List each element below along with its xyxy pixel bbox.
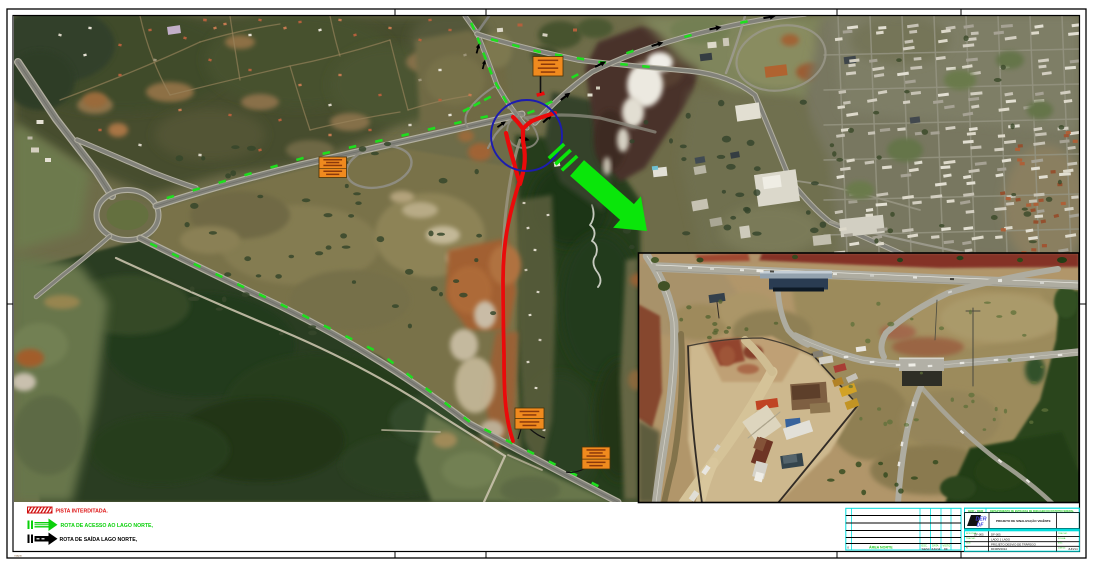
svg-text:DF005/2014: DF005/2014 [991, 547, 1007, 551]
svg-text:FOLHA: FOLHA [1058, 537, 1066, 540]
svg-text:TRECHO: TRECHO [1058, 533, 1068, 535]
svg-text:S/ESC: S/ESC [922, 547, 930, 551]
svg-text:PROJETO DESVIO DE TRÁFEGO: PROJETO DESVIO DE TRÁFEGO [991, 542, 1037, 546]
svg-text:JUN/14: JUN/14 [931, 547, 941, 551]
svg-text:ROTA DE SAÍDA LAGO NORTE,: ROTA DE SAÍDA LAGO NORTE, [60, 535, 138, 543]
svg-text:ROTA DE ACESSO AO LAGO NORTE,: ROTA DE ACESSO AO LAGO NORTE, [61, 523, 154, 529]
svg-text:LADO 1 LADO: LADO 1 LADO [991, 538, 1011, 542]
svg-text:DF: DF [944, 547, 948, 551]
svg-text:JUN/14: JUN/14 [1068, 547, 1078, 551]
svg-text:TRECHO: TRECHO [966, 538, 976, 540]
svg-text:SUB: SUB [966, 543, 971, 545]
svg-text:JUN/14: JUN/14 [1058, 547, 1066, 549]
svg-text:ESC: ESC [1058, 543, 1063, 545]
svg-text:PROJETO DE SINALIZAÇÃO VIGÊNTE: PROJETO DE SINALIZAÇÃO VIGÊNTE [996, 518, 1051, 523]
svg-text:DF-005: DF-005 [974, 533, 984, 537]
svg-text:PISTA INTERDITADA.: PISTA INTERDITADA. [56, 509, 109, 515]
svg-text:mapa: mapa [14, 554, 22, 558]
svg-text:ÁREA NORTE: ÁREA NORTE [869, 545, 893, 550]
svg-text:DF: DF [977, 523, 985, 529]
svg-text:DF-005: DF-005 [991, 533, 1001, 537]
